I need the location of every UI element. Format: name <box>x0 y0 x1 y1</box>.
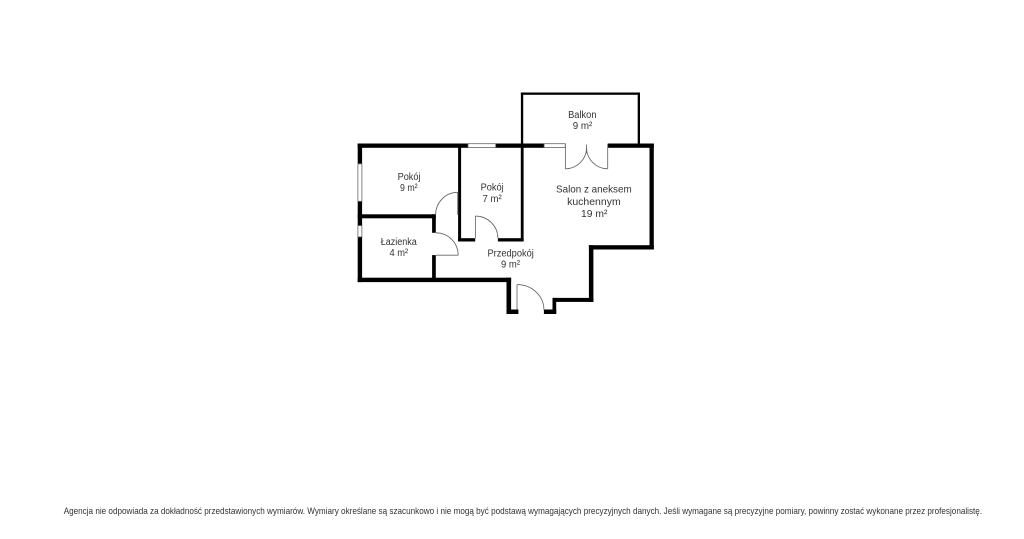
svg-text:Balkon: Balkon <box>568 110 596 121</box>
svg-text:kuchennym: kuchennym <box>567 197 621 208</box>
svg-text:Pokój: Pokój <box>481 183 504 194</box>
svg-text:19 m²: 19 m² <box>581 209 608 220</box>
svg-text:Pokój: Pokój <box>398 172 421 183</box>
svg-text:9 m²: 9 m² <box>573 121 593 132</box>
svg-text:9 m²: 9 m² <box>501 259 521 270</box>
svg-text:Agencja nie odpowiada za dokła: Agencja nie odpowiada za dokładność prze… <box>64 506 982 516</box>
svg-text:7 m²: 7 m² <box>483 194 503 205</box>
svg-text:Łazienka: Łazienka <box>381 237 417 248</box>
svg-text:Przedpokój: Przedpokój <box>488 248 534 259</box>
svg-text:9 m²: 9 m² <box>400 183 418 194</box>
svg-text:4 m²: 4 m² <box>390 248 409 259</box>
svg-text:Salon z aneksem: Salon z aneksem <box>556 184 632 195</box>
